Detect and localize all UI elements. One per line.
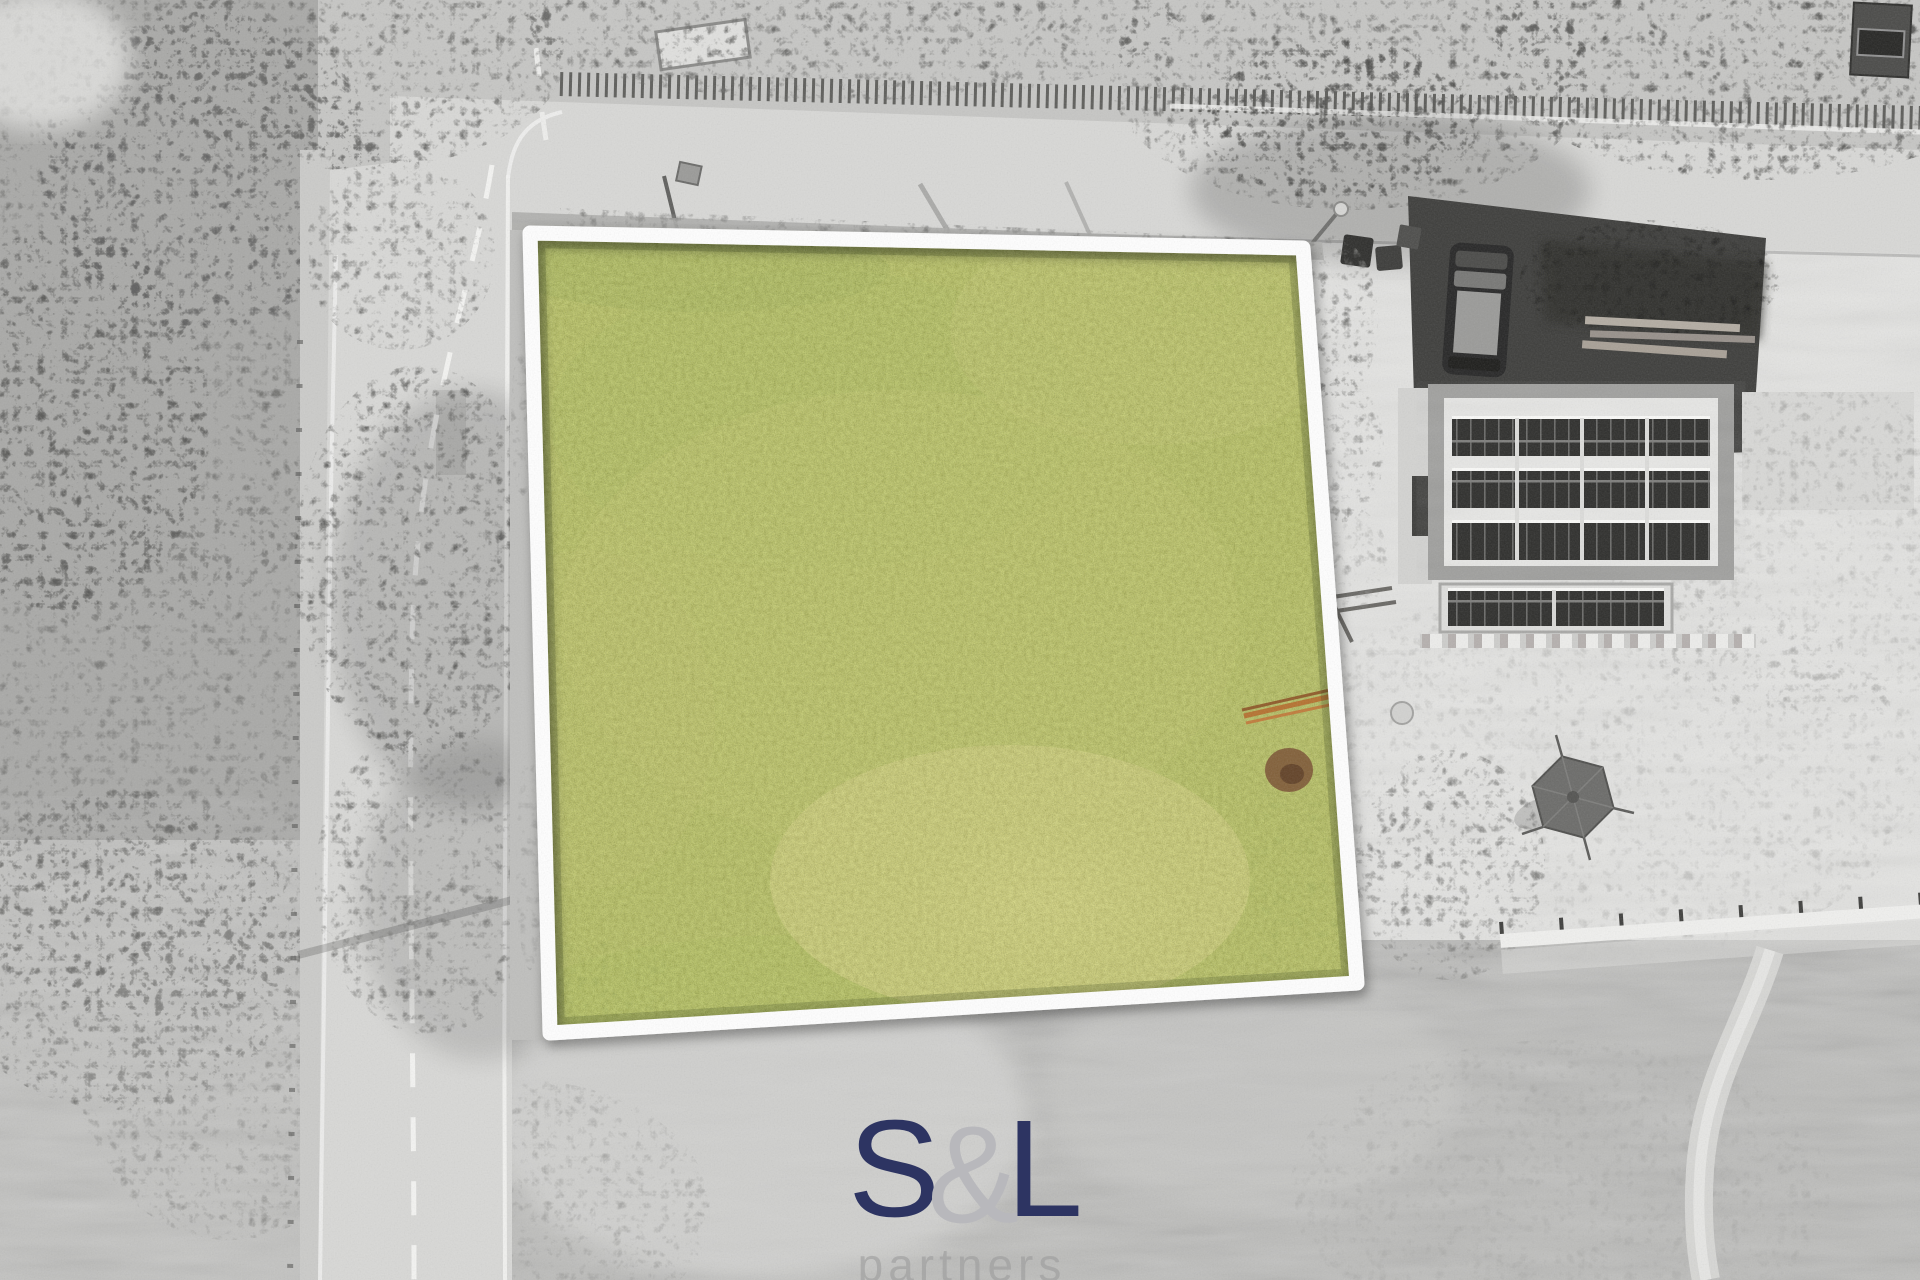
brand-ampersand: &: [927, 1098, 1012, 1252]
brand-text: S&L: [848, 1100, 1076, 1238]
photo-grain: [0, 0, 1920, 1280]
watermark-logo: S&L partners: [848, 1100, 1076, 1280]
brand-subtitle: partners: [848, 1242, 1076, 1280]
aerial-photo: S&L partners: [0, 0, 1920, 1280]
brand-letter-s: S: [848, 1092, 933, 1246]
aerial-scene: [0, 0, 1920, 1280]
brand-letter-l: L: [1006, 1092, 1076, 1246]
